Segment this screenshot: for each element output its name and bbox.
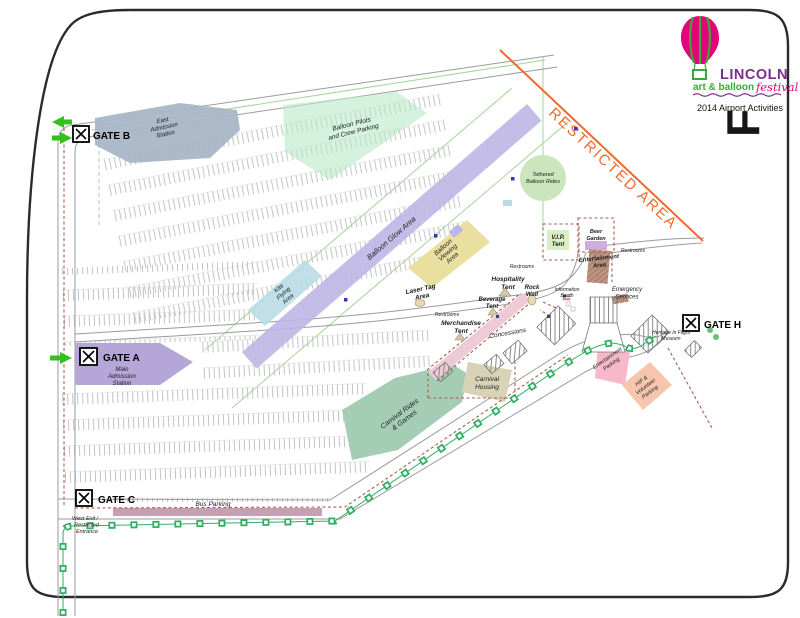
svg-text:Services: Services xyxy=(615,295,638,301)
svg-text:Restricted: Restricted xyxy=(74,523,100,529)
restrooms-label: Restrooms xyxy=(621,248,646,254)
festival-map-svg: RESTRICTED AREA xyxy=(0,0,800,618)
gate-a-desc: Main xyxy=(115,367,129,373)
svg-text:Entrance: Entrance xyxy=(76,529,98,535)
svg-text:Wall: Wall xyxy=(526,292,539,298)
svg-text:Admission: Admission xyxy=(107,374,136,380)
restrooms-label: Restrooms xyxy=(510,264,535,270)
svg-text:Station: Station xyxy=(113,381,132,387)
rock-wall-label: Rock Wall xyxy=(525,285,540,298)
gate-c-label: GATE C xyxy=(98,495,135,506)
emergency-services-label: Emergency Services xyxy=(612,287,643,301)
parking-lot-south xyxy=(62,381,370,492)
svg-text:Garden: Garden xyxy=(586,236,606,242)
svg-text:Emergency: Emergency xyxy=(612,287,643,293)
svg-text:Carnival: Carnival xyxy=(475,376,499,383)
svg-text:Beer: Beer xyxy=(590,229,603,235)
svg-text:V.I.P.: V.I.P. xyxy=(551,235,565,241)
bus-parking-label: Bus Parking xyxy=(195,501,230,508)
gate-a-label: GATE A xyxy=(103,353,140,364)
svg-text:Tent: Tent xyxy=(552,242,565,248)
gate-h-label: GATE H xyxy=(704,320,741,331)
airport-runway-marker: F xyxy=(717,109,769,137)
svg-text:Beverage: Beverage xyxy=(478,297,506,303)
svg-text:Rock: Rock xyxy=(525,285,540,291)
small-blue-pad xyxy=(503,200,512,206)
carnival-housing-label: Carnival Housing xyxy=(475,376,499,391)
svg-text:Tent: Tent xyxy=(454,328,468,335)
brand-sub: art & balloon xyxy=(693,82,754,93)
west-exit-label: West Exit / Restricted Entrance xyxy=(72,516,100,535)
svg-text:West Exit /: West Exit / xyxy=(72,516,99,522)
tethered-balloon-rides-area xyxy=(520,155,566,201)
brand-script: festival xyxy=(755,80,799,94)
beer-garden-area xyxy=(585,241,607,250)
festival-map-page: { "title_block": { "brand": "LINCOLN", "… xyxy=(0,0,800,618)
svg-text:Hospitality: Hospitality xyxy=(491,276,525,283)
svg-text:Balloon Rides: Balloon Rides xyxy=(526,179,560,185)
svg-text:Tethered: Tethered xyxy=(532,172,554,178)
svg-text:Museum: Museum xyxy=(661,336,680,342)
svg-text:Housing: Housing xyxy=(475,384,499,391)
svg-text:Merchandise: Merchandise xyxy=(441,320,481,327)
restrooms-label: Restrooms xyxy=(435,312,460,318)
svg-text:Tent: Tent xyxy=(501,284,515,291)
bus-parking-strip xyxy=(113,508,322,516)
tree-icon xyxy=(713,334,719,340)
svg-text:Tent: Tent xyxy=(486,304,499,310)
svg-text:Booth: Booth xyxy=(560,293,573,299)
vip-tent-label: V.I.P. Tent xyxy=(551,235,565,248)
gate-b-label: GATE B xyxy=(93,131,130,142)
